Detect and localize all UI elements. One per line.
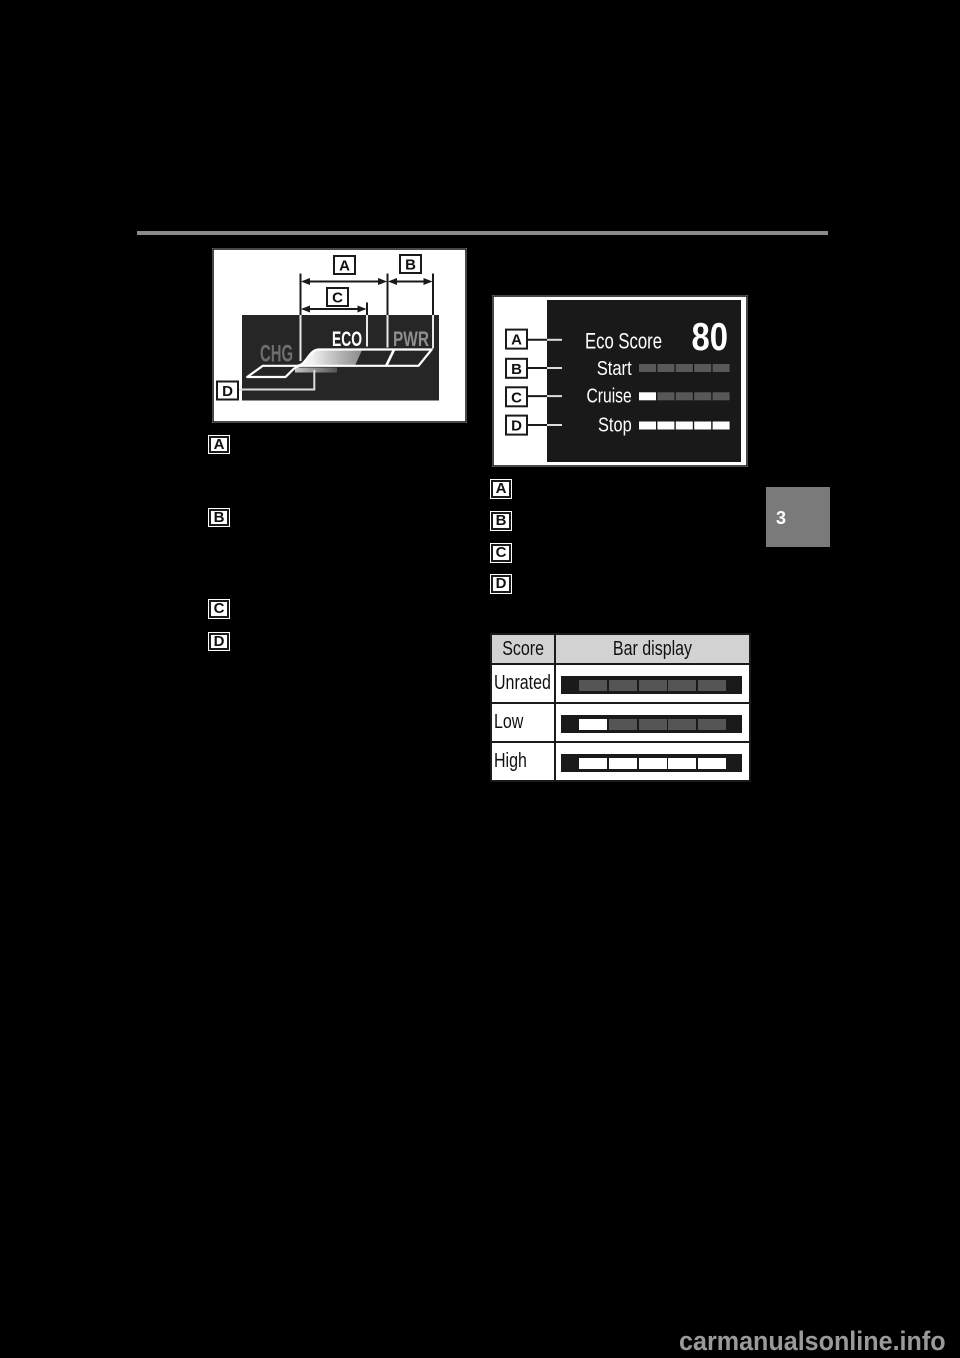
svg-text:D: D [222,383,233,400]
svg-text:80: 80 [692,316,729,359]
svg-text:Stop: Stop [598,415,632,437]
svg-text:B: B [511,361,522,378]
svg-text:C: C [332,290,343,307]
svg-text:Eco Score: Eco Score [585,329,662,354]
svg-text:CHG: CHG [260,341,293,368]
svg-text:ECO: ECO [332,328,362,351]
svg-text:PWR: PWR [393,328,429,351]
svg-text:B: B [405,257,416,274]
svg-text:Start: Start [597,358,632,380]
svg-text:C: C [511,389,522,406]
svg-text:Cruise: Cruise [587,386,632,408]
svg-text:A: A [339,258,350,275]
svg-text:A: A [511,332,522,349]
svg-text:D: D [511,418,522,435]
